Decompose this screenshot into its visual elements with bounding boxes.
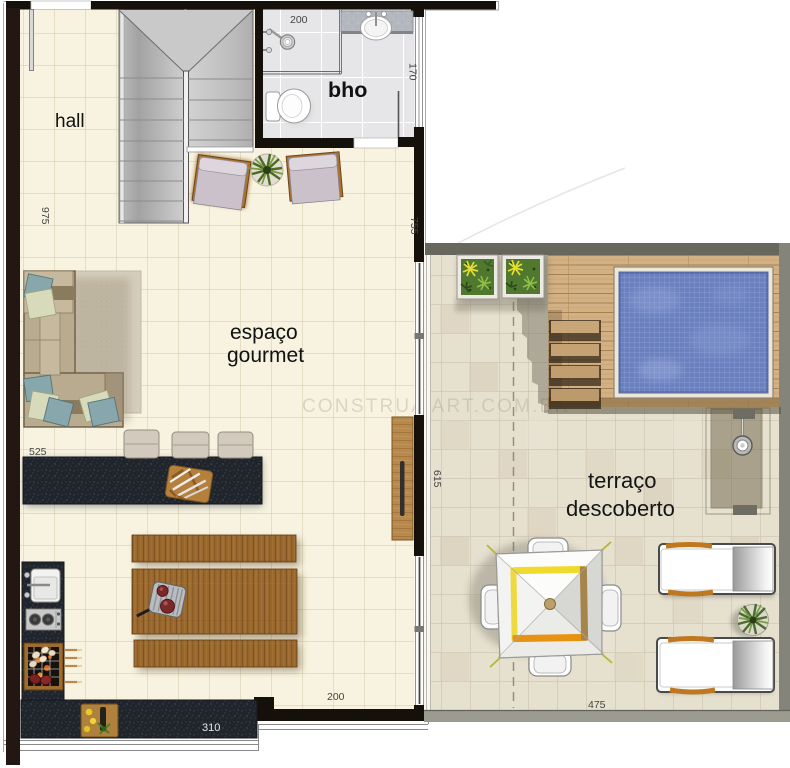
svg-text:170: 170: [407, 63, 419, 81]
svg-text:hall: hall: [55, 111, 85, 132]
svg-text:espaço: espaço: [230, 321, 298, 344]
svg-text:475: 475: [588, 699, 606, 711]
svg-text:bho: bho: [328, 78, 367, 102]
svg-text:975: 975: [39, 207, 51, 225]
svg-text:525: 525: [29, 446, 47, 458]
svg-text:CONSTRUA ART.COM.BR: CONSTRUA ART.COM.BR: [302, 396, 570, 417]
svg-text:200: 200: [290, 14, 308, 26]
svg-text:gourmet: gourmet: [227, 344, 304, 367]
svg-text:615: 615: [431, 470, 443, 488]
svg-text:descoberto: descoberto: [566, 496, 675, 521]
svg-text:755: 755: [408, 217, 420, 235]
svg-text:200: 200: [327, 691, 345, 703]
svg-text:310: 310: [202, 722, 220, 734]
svg-text:terraço: terraço: [588, 468, 656, 493]
